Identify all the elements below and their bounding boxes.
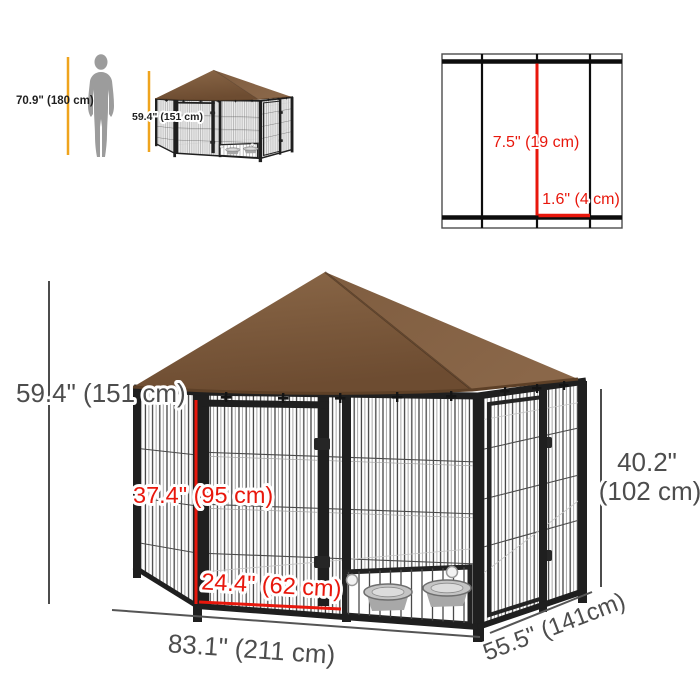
vertical-gap-label: 7.5" (19 cm) xyxy=(493,134,580,151)
door-height-label: 37.4" (95 cm) xyxy=(133,482,273,508)
food-bowl-1 xyxy=(364,584,412,611)
panel-height-label-cm: (102 cm) xyxy=(599,476,700,506)
latch-divider xyxy=(347,575,358,586)
kennel-canopy xyxy=(133,272,578,393)
door-hinge-bottom xyxy=(314,556,330,568)
overall-height-label: 59.4" (151 cm) xyxy=(16,378,186,408)
horizontal-gap-label: 1.6" (4 cm) xyxy=(542,191,620,208)
food-bowl-2 xyxy=(423,580,471,607)
latch-corner xyxy=(447,567,458,578)
mesh-spacing-diagram: 7.5" (19 cm) 1.6" (4 cm) xyxy=(442,54,622,228)
product-dimension-diagram: 70.9" (180 cm) 59.4" (151 cm) 7.5" (19 c… xyxy=(0,0,700,700)
length-label: 83.1" (211 cm) xyxy=(167,628,336,670)
scale-reference-group: 70.9" (180 cm) 59.4" (151 cm) xyxy=(16,54,293,162)
diagram-canvas: 70.9" (180 cm) 59.4" (151 cm) 7.5" (19 c… xyxy=(0,0,700,700)
kennel-height-thumb-label: 59.4" (151 cm) xyxy=(132,111,203,123)
panel-height-label-inches: 40.2" xyxy=(617,447,677,477)
door-hinge-top xyxy=(314,438,330,450)
right-wall-mesh xyxy=(478,382,583,627)
human-height-label: 70.9" (180 cm) xyxy=(16,95,94,107)
